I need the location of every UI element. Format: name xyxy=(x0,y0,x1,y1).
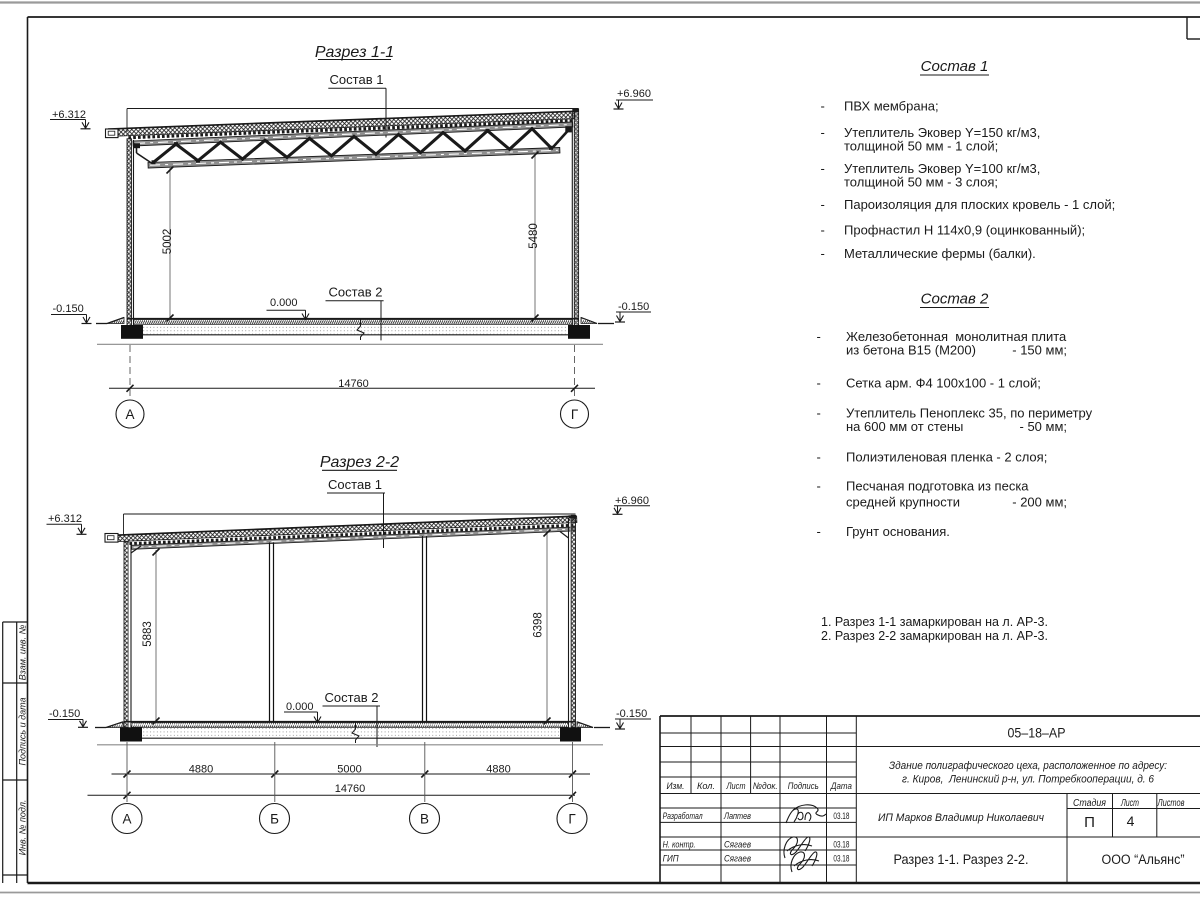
svg-text:Подпись и дата: Подпись и дата xyxy=(18,697,28,765)
svg-text:5002: 5002 xyxy=(162,229,174,255)
svg-text:- 50 мм;: - 50 мм; xyxy=(1020,419,1068,434)
svg-text:№док.: №док. xyxy=(753,781,778,792)
svg-text:1. Разрез 1-1 замаркирован на: 1. Разрез 1-1 замаркирован на л. АР-3. xyxy=(821,615,1048,629)
svg-text:Г: Г xyxy=(568,812,576,827)
svg-text:+6.960: +6.960 xyxy=(617,88,651,100)
svg-text:Полиэтиленовая пленка - 2 слоя: Полиэтиленовая пленка - 2 слоя; xyxy=(846,450,1047,465)
svg-text:Сетка арм. Ф4 100х100 - 1 слой: Сетка арм. Ф4 100х100 - 1 слой; xyxy=(846,376,1041,391)
svg-text:В: В xyxy=(420,812,429,827)
svg-text:Стадия: Стадия xyxy=(1073,798,1107,809)
svg-text:из бетона В15 (М200): из бетона В15 (М200) xyxy=(846,343,976,358)
svg-text:03.18: 03.18 xyxy=(833,840,849,850)
svg-text:-: - xyxy=(821,197,825,212)
svg-text:Сягаев: Сягаев xyxy=(724,854,751,865)
svg-text:-0.150: -0.150 xyxy=(616,708,647,720)
svg-text:Инв. № подл.: Инв. № подл. xyxy=(18,800,28,856)
svg-text:Пароизоляция для плоских крове: Пароизоляция для плоских кровель - 1 сло… xyxy=(844,197,1115,212)
svg-text:Сягаев: Сягаев xyxy=(724,840,751,851)
svg-text:Листов: Листов xyxy=(1157,798,1185,809)
svg-text:Лист: Лист xyxy=(1120,798,1139,809)
svg-text:г. Киров, Ленинский р-н, ул.: г. Киров, Ленинский р-н, ул. Потребкоопе… xyxy=(902,774,1155,786)
svg-text:5480: 5480 xyxy=(528,223,540,249)
svg-text:Состав 1: Состав 1 xyxy=(330,72,384,87)
svg-text:Песчаная подготовка из песка: Песчаная подготовка из песка xyxy=(846,479,1029,494)
svg-text:03.18: 03.18 xyxy=(833,811,849,821)
svg-text:Дата: Дата xyxy=(830,781,852,792)
svg-text:Металлические фермы (балки).: Металлические фермы (балки). xyxy=(844,246,1036,261)
svg-text:+6.960: +6.960 xyxy=(615,495,649,507)
svg-text:4: 4 xyxy=(1127,813,1135,829)
svg-text:-: - xyxy=(821,223,825,238)
svg-text:-: - xyxy=(817,376,821,391)
svg-text:Разработал: Разработал xyxy=(663,811,703,822)
svg-text:толщиной 50 мм - 1 слой;: толщиной 50 мм - 1 слой; xyxy=(844,139,998,154)
svg-text:-0.150: -0.150 xyxy=(49,708,80,720)
svg-text:Состав 2: Состав 2 xyxy=(325,690,379,705)
svg-text:0.000: 0.000 xyxy=(286,701,314,713)
svg-text:П: П xyxy=(1084,814,1095,831)
svg-text:14760: 14760 xyxy=(335,783,366,795)
svg-text:2. Разрез 2-2 замаркирован на: 2. Разрез 2-2 замаркирован на л. АР-3. xyxy=(821,629,1048,643)
svg-text:Б: Б xyxy=(270,812,279,827)
svg-text:Здание полиграфического цеха,: Здание полиграфического цеха, расположен… xyxy=(889,760,1167,772)
svg-text:ГИП: ГИП xyxy=(663,854,679,865)
svg-text:Разрез 2-2: Разрез 2-2 xyxy=(320,454,399,471)
svg-text:-: - xyxy=(817,329,821,344)
svg-text:ИП Марков Владимир Николаевич: ИП Марков Владимир Николаевич xyxy=(878,812,1044,824)
svg-text:Лист: Лист xyxy=(726,781,746,792)
svg-text:-: - xyxy=(817,479,821,494)
svg-text:Г: Г xyxy=(571,407,579,422)
svg-text:-: - xyxy=(817,406,821,421)
svg-text:-: - xyxy=(821,246,825,261)
svg-text:-: - xyxy=(821,99,825,114)
svg-text:Взам. инв. №: Взам. инв. № xyxy=(18,624,28,680)
svg-text:-: - xyxy=(817,450,821,465)
svg-text:Грунт основания.: Грунт основания. xyxy=(846,524,950,539)
svg-text:А: А xyxy=(122,812,131,827)
svg-text:5000: 5000 xyxy=(337,764,361,776)
svg-text:Подпись: Подпись xyxy=(788,781,819,792)
svg-text:03.18: 03.18 xyxy=(833,854,849,864)
svg-text:Лаптев: Лаптев xyxy=(723,811,751,822)
svg-text:-: - xyxy=(817,524,821,539)
svg-text:-0.150: -0.150 xyxy=(53,303,84,315)
svg-text:Состав 2: Состав 2 xyxy=(329,285,383,300)
svg-text:05–18–АР: 05–18–АР xyxy=(1008,725,1066,741)
svg-text:5883: 5883 xyxy=(142,621,154,647)
svg-text:Изм.: Изм. xyxy=(667,781,685,792)
svg-text:Профнастил Н 114х0,9 (оцинкова: Профнастил Н 114х0,9 (оцинкованный); xyxy=(844,223,1085,238)
svg-text:Кол.: Кол. xyxy=(697,781,715,792)
svg-text:4880: 4880 xyxy=(189,764,213,776)
svg-text:А: А xyxy=(125,407,134,422)
svg-text:0.000: 0.000 xyxy=(270,297,298,309)
svg-text:Состав 2: Состав 2 xyxy=(921,291,989,308)
svg-text:толщиной 50 мм - 3 слоя;: толщиной 50 мм - 3 слоя; xyxy=(844,175,998,190)
svg-text:- 150 мм;: - 150 мм; xyxy=(1012,343,1067,358)
svg-text:-0.150: -0.150 xyxy=(618,301,649,313)
svg-text:Разрез 1-1: Разрез 1-1 xyxy=(315,44,394,61)
svg-text:ПВХ мембрана;: ПВХ мембрана; xyxy=(844,99,939,114)
svg-text:ООО “Альянс”: ООО “Альянс” xyxy=(1102,852,1185,867)
svg-text:-: - xyxy=(821,161,825,176)
svg-text:Н. контр.: Н. контр. xyxy=(663,840,696,851)
svg-text:6398: 6398 xyxy=(533,612,545,638)
svg-text:средней крупности: средней крупности xyxy=(846,495,960,510)
svg-text:4880: 4880 xyxy=(486,764,510,776)
svg-text:Состав 1: Состав 1 xyxy=(328,477,382,492)
svg-text:Состав 1: Состав 1 xyxy=(921,58,989,75)
svg-text:Разрез 1-1. Разрез 2-2.: Разрез 1-1. Разрез 2-2. xyxy=(894,851,1029,867)
svg-text:-: - xyxy=(821,125,825,140)
svg-text:+6.312: +6.312 xyxy=(48,513,82,525)
svg-text:на 600 мм от стены: на 600 мм от стены xyxy=(846,419,963,434)
svg-text:- 200 мм;: - 200 мм; xyxy=(1012,495,1067,510)
svg-text:14760: 14760 xyxy=(338,378,369,390)
